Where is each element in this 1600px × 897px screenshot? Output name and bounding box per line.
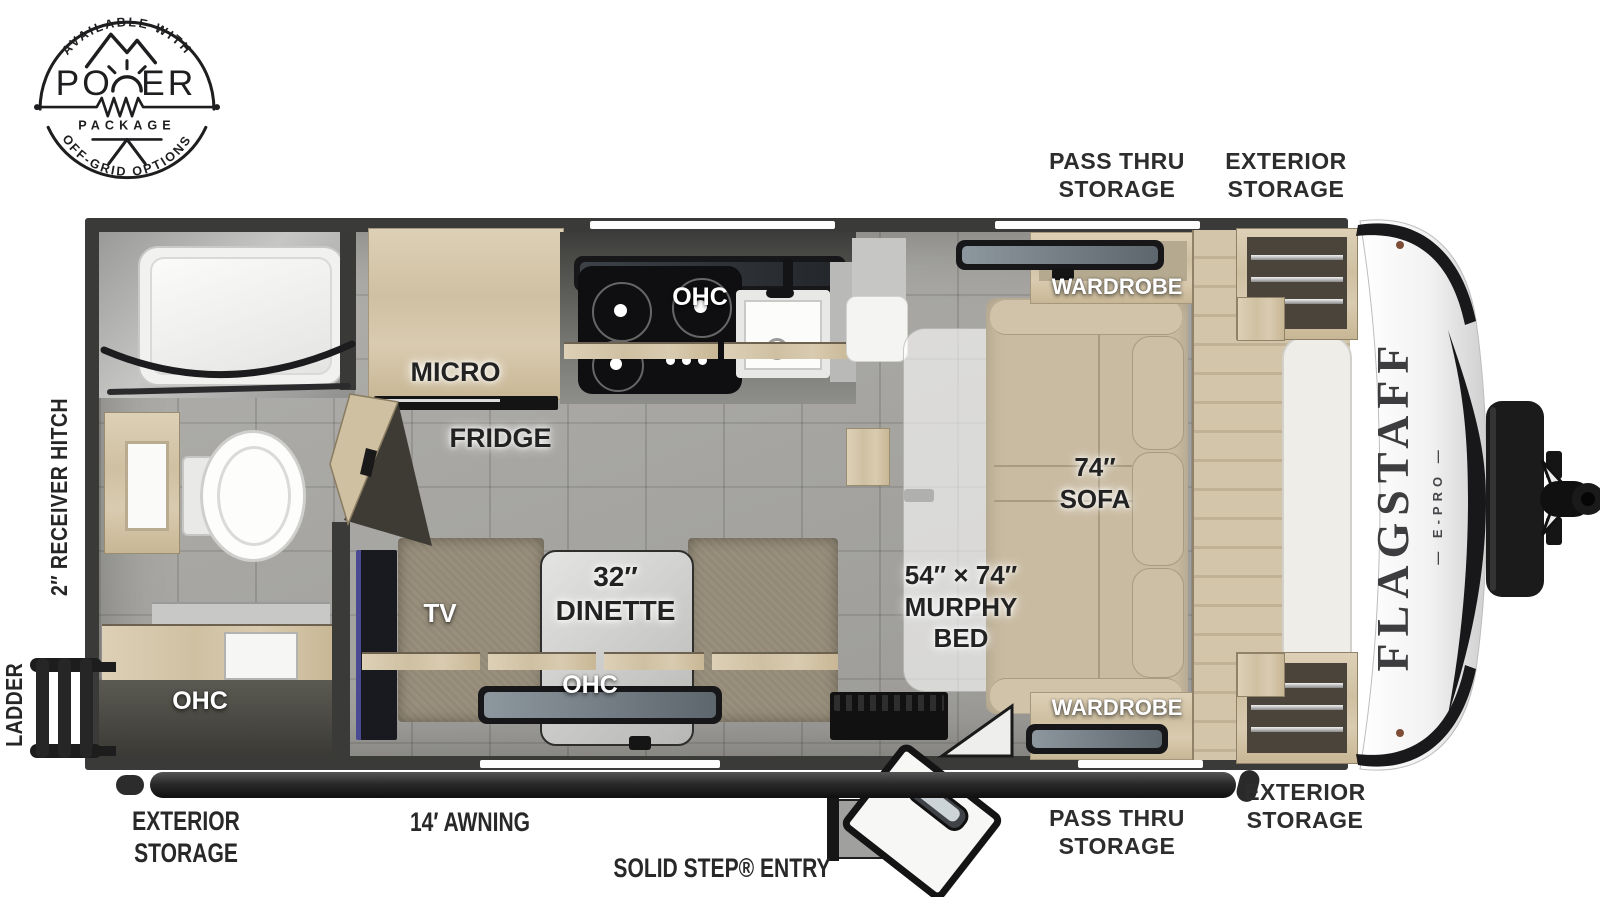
- wardrobe-top-label: WARDROBE: [1032, 274, 1202, 301]
- ladder-icon: [30, 656, 116, 762]
- wardrobe-bottom-label: WARDROBE: [1032, 695, 1202, 722]
- ohc-dinette-label: OHC: [548, 670, 632, 701]
- model-name-text: FLAGSTAFF: [1367, 338, 1418, 671]
- model-sub-text: — E-PRO —: [1430, 445, 1445, 564]
- tub-edge-line: [110, 386, 348, 392]
- solid-step-entry-label: SOLID STEP® ENTRY: [605, 852, 839, 885]
- entry-landing: [942, 706, 1012, 756]
- exterior-storage-top-label: EXTERIOR STORAGE: [1196, 147, 1376, 203]
- ladder-rung: [58, 658, 71, 758]
- awning-label: 14′ AWNING: [376, 806, 563, 839]
- marker-light-icon: [1396, 729, 1404, 737]
- front-cap: FLAGSTAFF — E-PRO —: [1330, 205, 1600, 790]
- pass-thru-storage-bottom-label: PASS THRU STORAGE: [1027, 804, 1207, 860]
- ladder-mount: [92, 662, 116, 672]
- hitch-box-highlight: [1490, 407, 1496, 591]
- ohc-bath-label: OHC: [158, 686, 242, 717]
- exterior-storage-bottom-left-label: EXTERIOR STORAGE: [116, 806, 256, 870]
- ohc-kitchen-label: OHC: [658, 282, 742, 313]
- ladder-mount: [92, 746, 116, 756]
- step-tread: [844, 746, 1000, 897]
- fridge-label: FRIDGE: [448, 422, 553, 455]
- micro-label: MICRO: [393, 356, 518, 389]
- exterior-storage-bottom-right-label: EXTERIOR STORAGE: [1215, 778, 1395, 834]
- tv-label: TV: [410, 598, 470, 630]
- ladder-label: LADDER: [0, 665, 28, 747]
- receiver-hitch-label: 2″ RECEIVER HITCH: [45, 385, 75, 609]
- murphy-bed-label: 54″ × 74″ MURPHY BED: [876, 560, 1046, 655]
- awning-end-left: [116, 775, 144, 795]
- sofa-label: 74″ SOFA: [1040, 452, 1150, 515]
- marker-light-icon: [1396, 241, 1404, 249]
- pass-thru-storage-top-label: PASS THRU STORAGE: [1027, 147, 1207, 203]
- awning-tube: [150, 772, 1236, 798]
- hitch-jack-knob-center: [1581, 492, 1595, 506]
- solid-step-icon: [844, 746, 1000, 897]
- ladder-rung: [80, 658, 93, 758]
- shower-curtain-arc: [104, 344, 352, 375]
- hitch-icon: [1486, 401, 1600, 597]
- ladder-rung: [36, 658, 49, 758]
- dinette-label: 32″ DINETTE: [543, 560, 688, 628]
- floorplan-page: AVAILABLE WITH OFF-GRID OPTIONS PO ER PA…: [0, 0, 1600, 897]
